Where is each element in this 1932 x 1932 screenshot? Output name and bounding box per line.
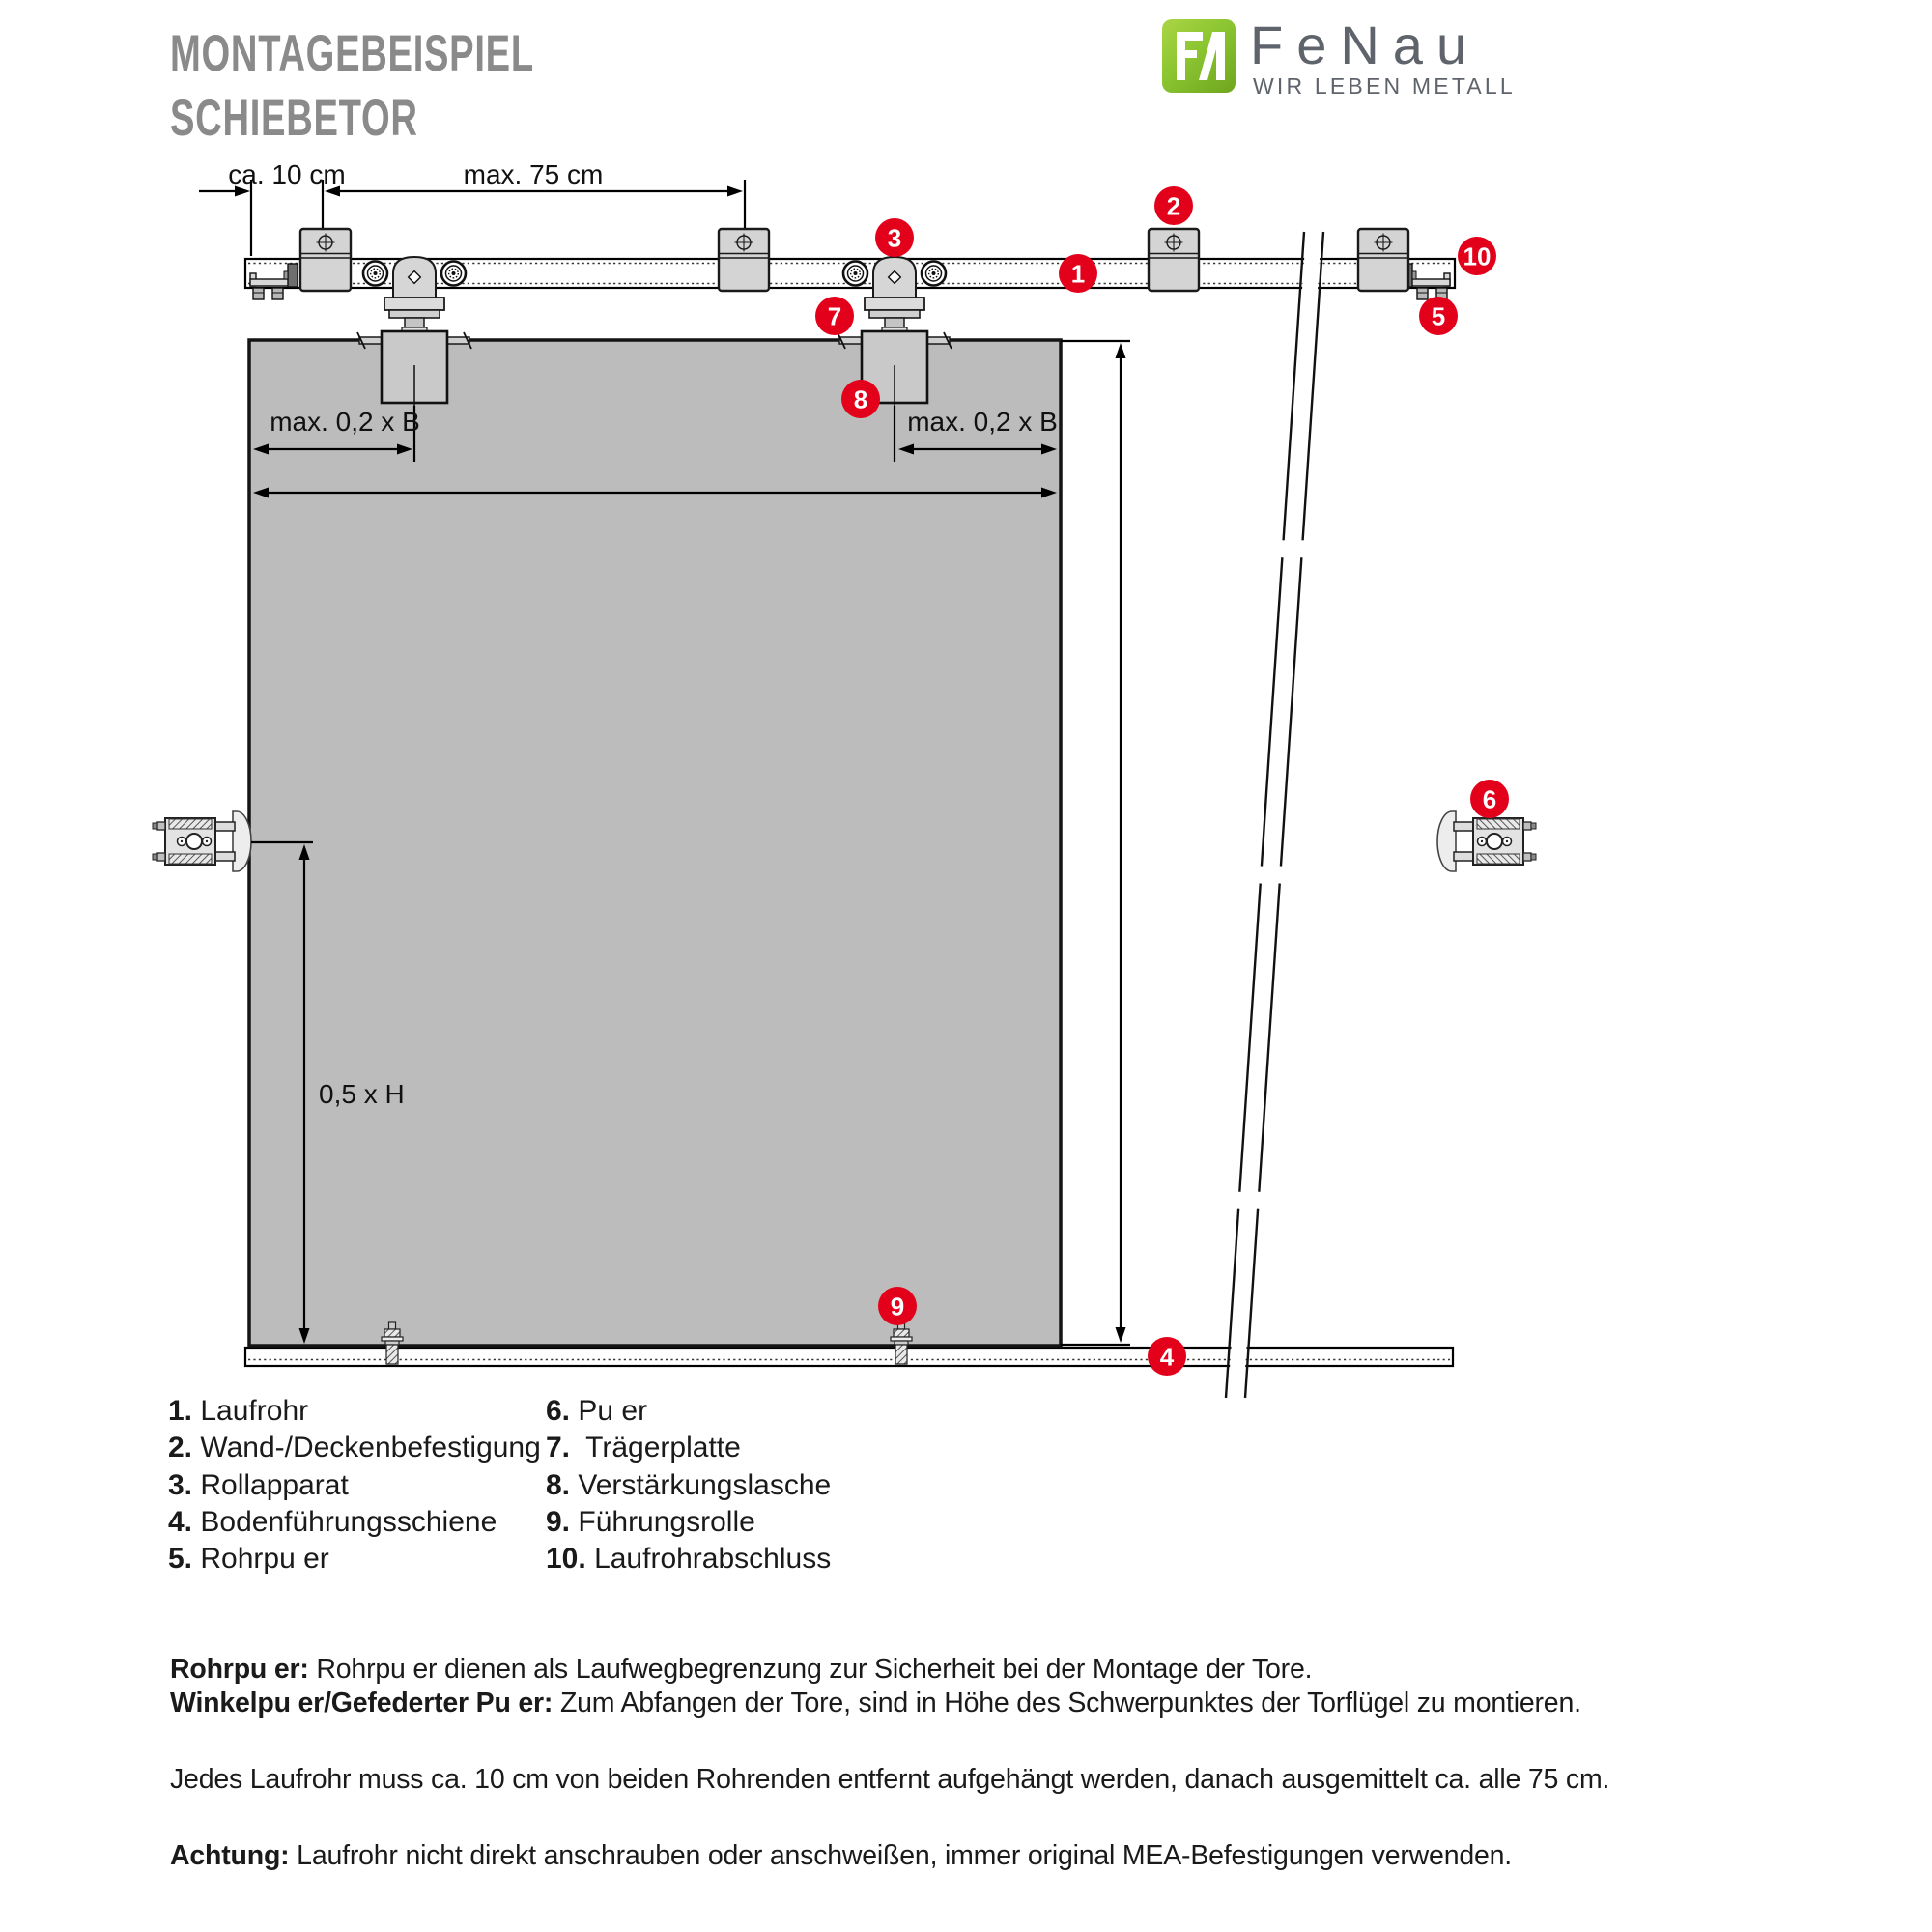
legend-item-1: 1. Laufrohr xyxy=(168,1393,541,1430)
legend-item-2: 2. Wand-/Deckenbefestigung xyxy=(168,1430,541,1466)
door-panel xyxy=(249,340,1061,1346)
legend-item-4: 4. Bodenführungsschiene xyxy=(168,1504,541,1541)
dim-label-spacing: max. 75 cm xyxy=(464,159,604,189)
break-lines xyxy=(1226,232,1323,1398)
callout-10: 10 xyxy=(1458,237,1496,275)
callout-9: 9 xyxy=(878,1287,917,1325)
svg-text:2: 2 xyxy=(1167,192,1180,221)
dim-label-offset: ca. 10 cm xyxy=(228,159,345,189)
legend-item-5: 5. Rohrpu er xyxy=(168,1541,541,1577)
callout-3: 3 xyxy=(875,218,914,257)
callout-6: 6 xyxy=(1470,780,1509,818)
callout-5: 5 xyxy=(1419,297,1458,335)
callout-7: 7 xyxy=(815,297,854,335)
legend-column-left: 1. Laufrohr 2. Wand-/Deckenbefestigung 3… xyxy=(168,1393,541,1577)
ceiling-bracket-4 xyxy=(1358,229,1408,291)
floor-guide-rail xyxy=(245,1348,1453,1366)
spring-buffer-left xyxy=(153,811,251,871)
page: MONTAGEBEISPIEL SCHIEBETOR FeNau WIR LEB… xyxy=(0,0,1932,1932)
legend-item-3: 3. Rollapparat xyxy=(168,1467,541,1504)
note-rohrpuffer: Rohrpu er: Rohrpu er dienen als Laufwegb… xyxy=(170,1656,1312,1684)
spring-buffer-right xyxy=(1437,811,1536,871)
svg-text:5: 5 xyxy=(1432,302,1445,331)
note-warning: Achtung: Laufrohr nicht direkt anschraub… xyxy=(170,1842,1512,1870)
svg-text:7: 7 xyxy=(828,302,841,331)
svg-text:10: 10 xyxy=(1463,242,1492,271)
svg-text:4: 4 xyxy=(1160,1343,1175,1372)
legend-item-7: 7. Trägerplatte xyxy=(546,1430,831,1466)
svg-text:9: 9 xyxy=(891,1293,904,1321)
svg-text:6: 6 xyxy=(1483,785,1496,814)
svg-text:8: 8 xyxy=(854,385,867,414)
legend-item-10: 10. Laufrohrabschluss xyxy=(546,1541,831,1577)
ceiling-bracket-3 xyxy=(1149,229,1199,291)
callout-8: 8 xyxy=(841,380,880,418)
svg-text:3: 3 xyxy=(888,224,901,253)
ceiling-bracket-2 xyxy=(719,229,769,291)
dim-label-height: 0,5 x H xyxy=(319,1079,405,1109)
callout-2: 2 xyxy=(1154,186,1193,225)
dim-label-door-right: max. 0,2 x B xyxy=(907,407,1058,437)
callout-4: 4 xyxy=(1148,1337,1186,1376)
assembly-diagram: ca. 10 cm max. 75 cm max. 0,2 x B max. 0… xyxy=(0,0,1932,1932)
legend-item-8: 8. Verstärkungslasche xyxy=(546,1467,831,1504)
note-winkelpuffer: Winkelpu er/Gefederter Pu er: Zum Abfang… xyxy=(170,1690,1581,1718)
svg-text:1: 1 xyxy=(1071,260,1085,289)
legend-column-right: 6. Pu er 7. Trägerplatte 8. Verstärkungs… xyxy=(546,1393,831,1577)
legend-item-6: 6. Pu er xyxy=(546,1393,831,1430)
dim-label-door-left: max. 0,2 x B xyxy=(270,407,420,437)
callout-1: 1 xyxy=(1059,254,1097,293)
ceiling-bracket-1 xyxy=(300,229,351,291)
note-spacing: Jedes Laufrohr muss ca. 10 cm von beiden… xyxy=(170,1766,1609,1794)
legend-item-9: 9. Führungsrolle xyxy=(546,1504,831,1541)
